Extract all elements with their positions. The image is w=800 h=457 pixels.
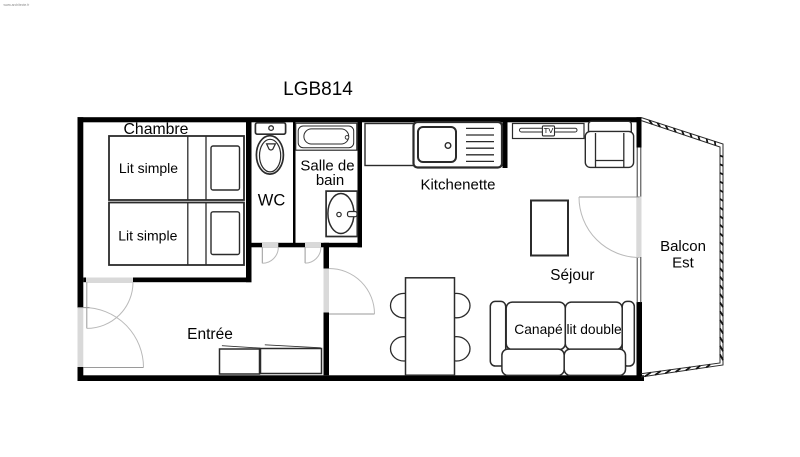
svg-text:bain: bain (316, 172, 344, 189)
svg-text:Entrée: Entrée (187, 326, 233, 343)
svg-text:LGB814: LGB814 (283, 79, 353, 100)
svg-text:WC: WC (258, 191, 286, 209)
svg-text:TV: TV (544, 126, 555, 135)
svg-text:Lit simple: Lit simple (118, 227, 177, 243)
svg-text:www.architecte.fr: www.architecte.fr (4, 3, 31, 7)
svg-text:Kitchenette: Kitchenette (420, 177, 495, 194)
svg-text:Est: Est (672, 255, 695, 272)
svg-text:Balcon: Balcon (660, 238, 706, 255)
svg-text:Séjour: Séjour (550, 267, 594, 284)
svg-text:Chambre: Chambre (124, 121, 189, 138)
svg-text:Canapé lit double: Canapé lit double (514, 322, 622, 337)
svg-text:Lit simple: Lit simple (119, 160, 178, 176)
